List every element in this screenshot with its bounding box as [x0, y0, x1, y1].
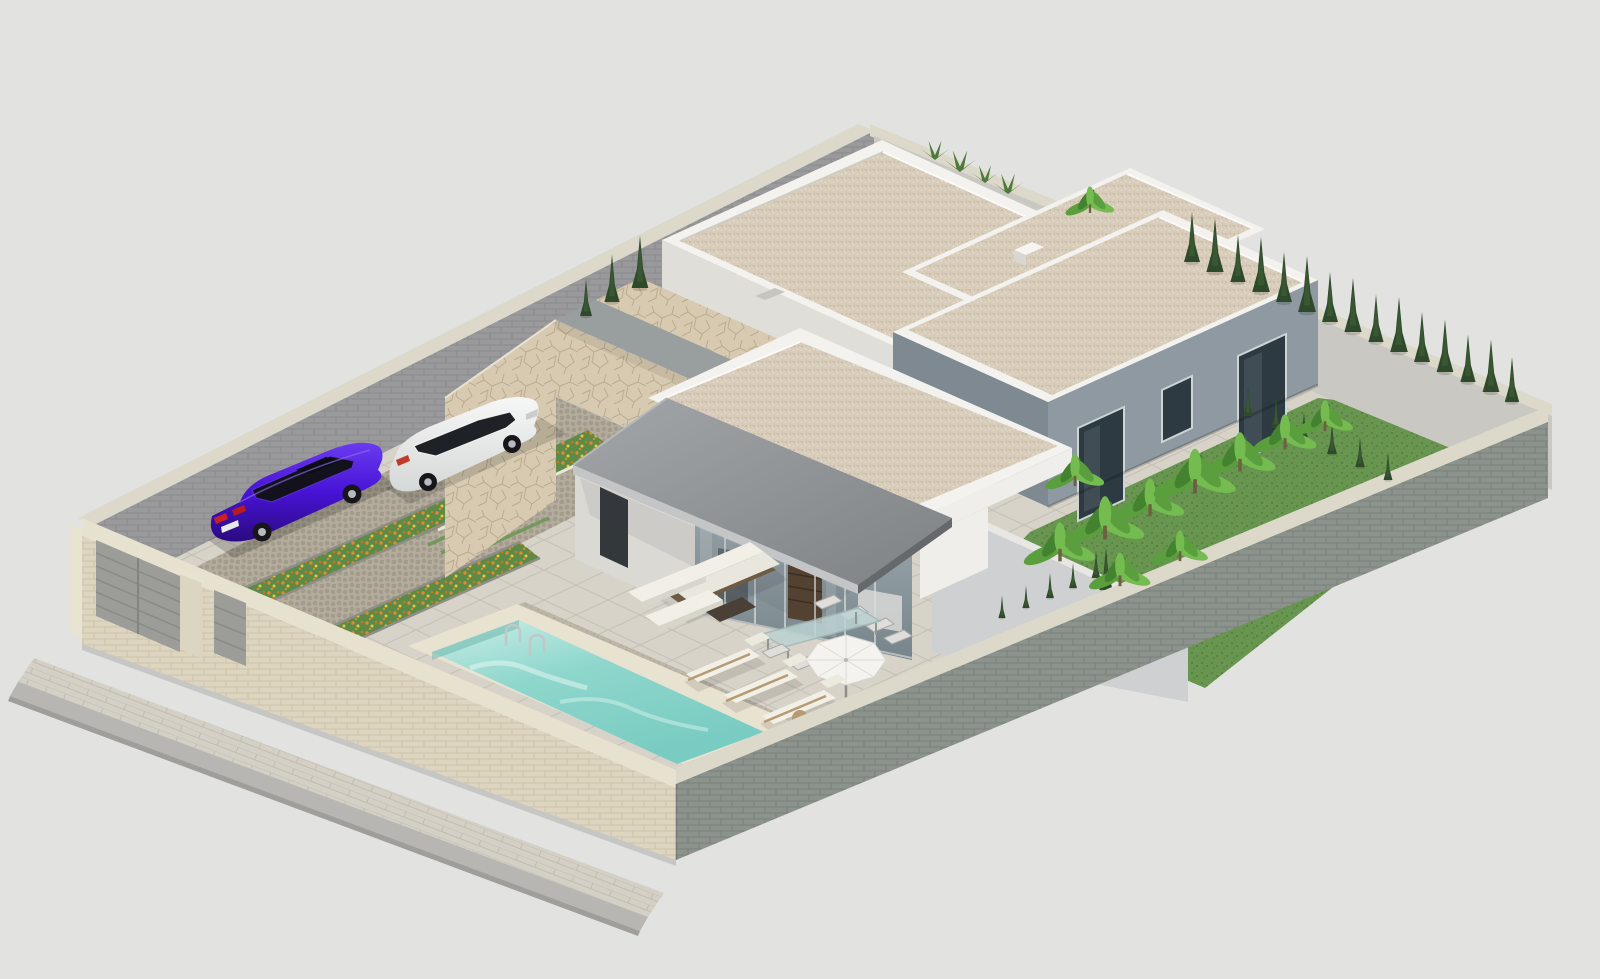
gate-pillar — [180, 574, 202, 658]
architectural-render — [0, 0, 1600, 979]
render-canvas — [0, 0, 1600, 979]
pedestrian-gate — [214, 590, 246, 666]
